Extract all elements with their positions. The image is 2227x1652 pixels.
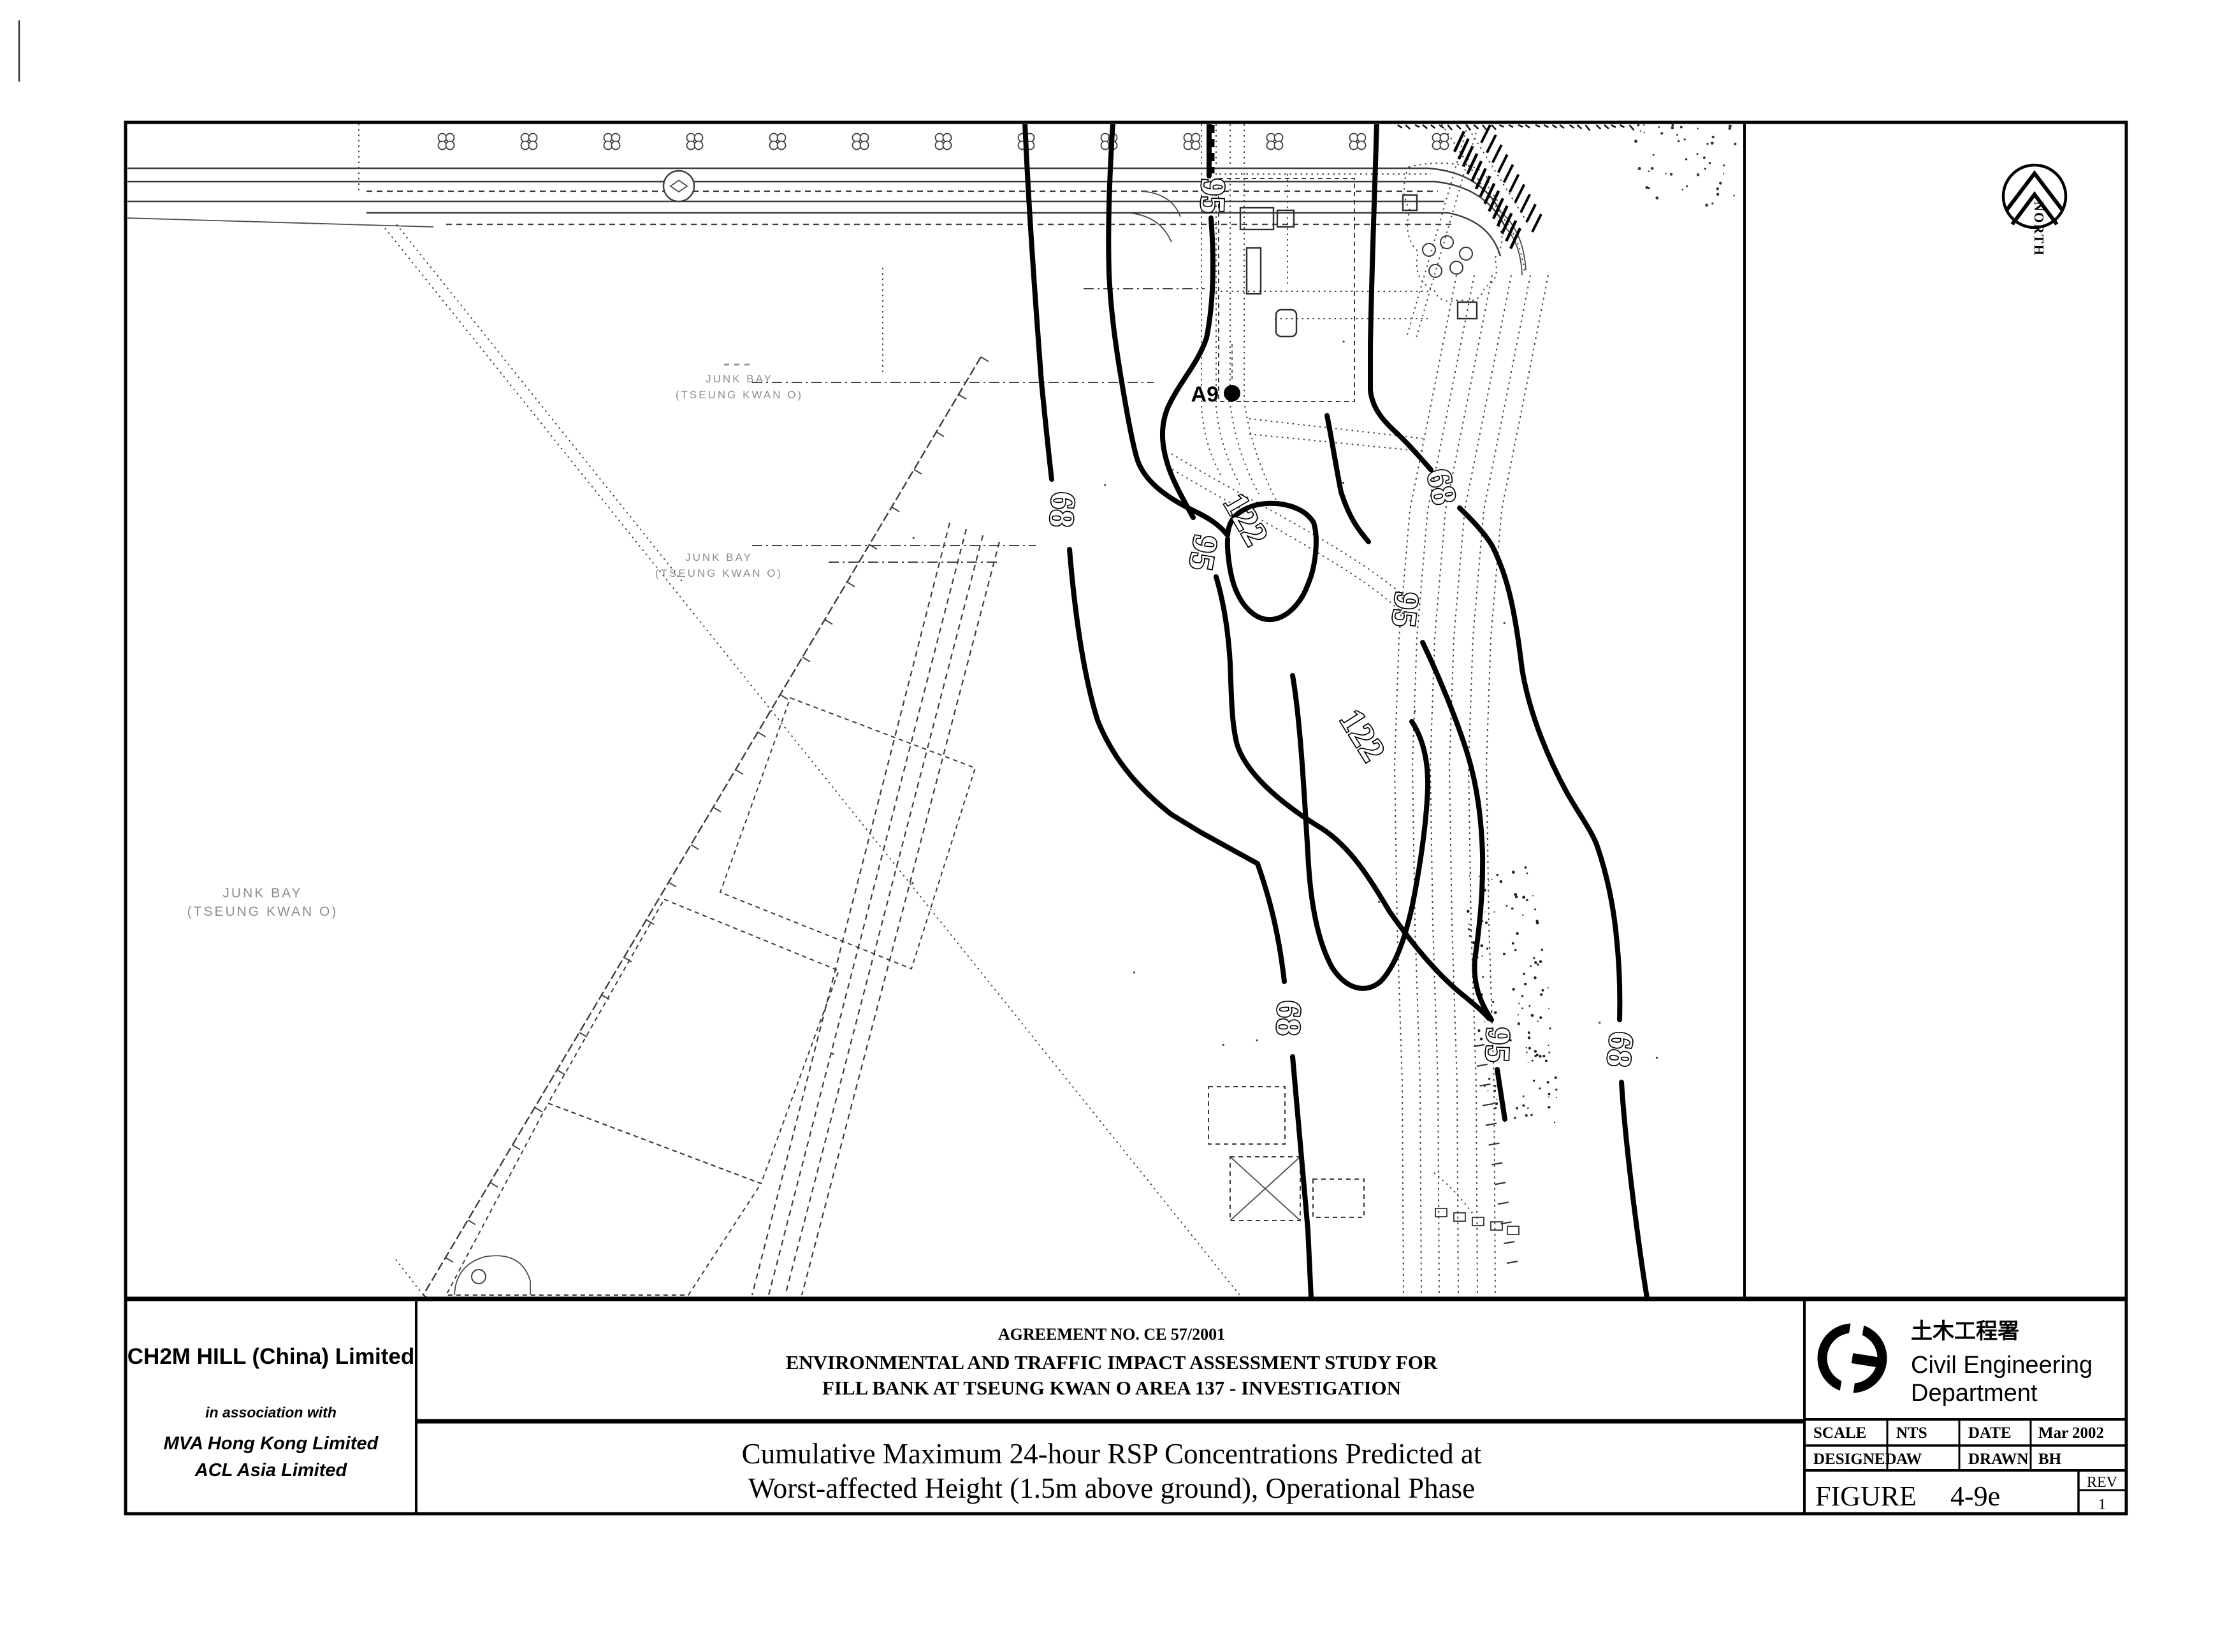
stipple-dot: [1537, 1020, 1539, 1022]
edge-texture: [1525, 125, 1530, 128]
survey-fleck: [1414, 710, 1416, 712]
survey-fleck: [911, 882, 913, 884]
stipple-dot: [1549, 1027, 1551, 1029]
edge-texture: [1596, 125, 1600, 129]
vegetation-dot: [1676, 134, 1678, 136]
stipple-dot: [1554, 1122, 1556, 1124]
edge-texture: [1466, 125, 1470, 130]
contour-68-west: [1025, 122, 1311, 1298]
consultant-partner-2: ACL Asia Limited: [194, 1460, 348, 1481]
stipple-dot: [1548, 987, 1549, 989]
stipple-dot: [1528, 1047, 1531, 1050]
stipple-dot: [1528, 1036, 1530, 1039]
sheet-frame: [126, 122, 2126, 1514]
survey-fleck: [1599, 1022, 1600, 1024]
tree-icon: [439, 134, 454, 150]
stipple-dot: [1556, 1097, 1557, 1098]
stipple-dot: [1541, 948, 1543, 950]
stipple-dot: [1534, 961, 1537, 964]
vegetation-dot: [1644, 132, 1645, 133]
edge-texture: [1474, 125, 1478, 129]
stipple-dot: [1470, 929, 1471, 931]
stipple-dot: [1512, 871, 1515, 874]
stipple-dot: [1534, 908, 1536, 910]
survey-fleck: [1342, 340, 1344, 342]
stipple-dot: [1525, 866, 1527, 869]
department-cell: 土木工程署 Civil Engineering Department: [1822, 1316, 2093, 1407]
stipple-dot: [1488, 880, 1490, 881]
edge-texture: [1544, 125, 1548, 127]
vegetation-dot: [1734, 143, 1736, 145]
slope-hatch: [1532, 214, 1541, 232]
contour-label-95: 95: [1193, 178, 1233, 215]
vegetation-dot: [1696, 153, 1698, 155]
stipple-dot: [1540, 993, 1542, 996]
seawall-tick: [713, 808, 721, 812]
date-label: DATE: [1968, 1424, 2012, 1442]
seawall-tick: [847, 582, 855, 586]
vegetation-dot: [1733, 195, 1735, 197]
water-label-name-0: JUNK BAY: [706, 373, 773, 385]
vegetation-dot: [1685, 158, 1687, 160]
stipple-dot: [1479, 876, 1480, 877]
stipple-dot: [1526, 899, 1528, 901]
stipple-dot: [1526, 1047, 1527, 1048]
vegetation-dot: [1681, 189, 1683, 191]
water-label-alt-0: (TSEUNG KWAN O): [676, 389, 803, 401]
stipple-dot: [1512, 942, 1514, 945]
stipple-dot: [1518, 1014, 1519, 1015]
vegetation-dot: [1648, 187, 1650, 189]
road-bundle-line: [1449, 275, 1511, 1297]
survey-fleck: [1256, 1040, 1258, 1041]
road-bundle-line: [1412, 275, 1474, 1297]
stipple-dot: [1525, 1114, 1528, 1117]
survey-fleck: [1104, 484, 1106, 486]
vegetation-dot: [1660, 132, 1663, 134]
consultant-association: in association with: [205, 1404, 337, 1421]
stipple-dot: [1494, 1085, 1496, 1087]
stipple-dot: [1482, 976, 1484, 978]
edge-texture: [1518, 125, 1523, 127]
title-block: CH2M HILL (China) Limited in association…: [127, 1299, 2126, 1514]
slope-hatch: [1515, 184, 1524, 202]
drawn-value: BH: [2038, 1451, 2062, 1468]
edge-texture: [1553, 125, 1557, 128]
survey-fleck: [1378, 901, 1380, 903]
stipple-dot: [1542, 1055, 1545, 1057]
stipple-dot: [1484, 911, 1486, 913]
bench-tick: [1477, 1064, 1488, 1066]
stipple-dot: [1491, 879, 1493, 880]
stipple-dot: [1494, 1011, 1497, 1014]
stipple-dot: [1527, 1107, 1529, 1109]
stipple-dot: [1518, 1022, 1520, 1025]
stipple-dot: [1516, 1107, 1518, 1110]
north-arrow-icon: NORTH: [2003, 165, 2066, 256]
survey-fleck: [1222, 1044, 1224, 1046]
stipple-dot: [1503, 953, 1505, 955]
stipple-dot: [1527, 873, 1528, 874]
vegetation-dot: [1711, 141, 1714, 145]
vegetation-dot: [1665, 173, 1667, 175]
water-label-alt-1: (TSEUNG KWAN O): [655, 567, 783, 579]
vegetation-dot: [1706, 143, 1708, 145]
department-name-zh: 土木工程署: [1911, 1319, 2019, 1344]
stipple-dot: [1469, 924, 1470, 925]
figure-title-line-1: Cumulative Maximum 24-hour RSP Concentra…: [742, 1438, 1482, 1470]
seawall-line: [423, 357, 981, 1295]
stipple-dot: [1516, 932, 1519, 935]
edge-texture: [1560, 125, 1564, 128]
contour-label-122: 122: [1332, 702, 1393, 768]
jetty-structure: [1454, 1213, 1465, 1221]
stipple-dot: [1522, 895, 1525, 899]
vegetation-dot: [1716, 193, 1720, 196]
rev-label: REV: [2087, 1474, 2118, 1491]
tree-icon: [1184, 134, 1200, 150]
jetty-structure: [1491, 1222, 1502, 1230]
edge-texture: [1423, 125, 1427, 129]
vegetation-dot: [1671, 126, 1674, 129]
vegetation-dot: [1655, 196, 1658, 199]
stipple-dot: [1486, 948, 1488, 950]
edge-texture: [1456, 125, 1461, 129]
survey-fleck: [913, 537, 915, 539]
date-value: Mar 2002: [2038, 1424, 2104, 1442]
stipple-dot: [1496, 1099, 1497, 1100]
consultant-lead: CH2M HILL (China) Limited: [127, 1344, 414, 1369]
ced-logo-icon: [1822, 1316, 1882, 1400]
vegetation-dot: [1638, 167, 1641, 170]
stipple-dot: [1548, 1106, 1550, 1108]
designed-label: DESIGNED: [1813, 1451, 1897, 1468]
edge-texture: [1611, 125, 1616, 127]
a9-marker-dot: [1224, 385, 1240, 402]
road-bundle-line: [1430, 275, 1492, 1297]
vegetation-dot: [1697, 173, 1699, 176]
vegetation-dot: [1684, 138, 1686, 140]
edge-texture: [1415, 125, 1419, 127]
edge-texture: [1604, 125, 1609, 129]
contours: [1025, 122, 1647, 1298]
stipple-dot: [1526, 1052, 1527, 1053]
scale-value: NTS: [1896, 1424, 1927, 1442]
stipple-dot: [1545, 1060, 1548, 1062]
stipple-dot: [1514, 1119, 1515, 1120]
vegetation-dot: [1648, 170, 1650, 172]
seawall-tick: [557, 1070, 565, 1075]
vegetation-dot: [1658, 126, 1660, 128]
stipple-dot: [1539, 1087, 1541, 1089]
stipple-dot: [1534, 976, 1536, 979]
seawall-tick: [780, 695, 788, 699]
terrain-decoration: [423, 124, 1736, 1300]
contour-label-95: 95: [1478, 1027, 1518, 1064]
survey-fleck: [1133, 971, 1135, 973]
map-area: 6895951229568122956868 JUNK BAY(TSEUNG K…: [126, 122, 1736, 1300]
study-line-2: FILL BANK AT TSEUNG KWAN O AREA 137 - IN…: [822, 1377, 1401, 1399]
consultant-partner-1: MVA Hong Kong Limited: [164, 1433, 379, 1454]
seawall-tick: [892, 507, 899, 512]
bench-tick: [1498, 1202, 1509, 1204]
stipple-dot: [1481, 955, 1483, 957]
seawall-tick: [736, 770, 743, 774]
water-labels: JUNK BAY(TSEUNG KWAN O)JUNK BAY(TSEUNG K…: [187, 365, 803, 919]
stipple-dot: [1532, 895, 1534, 896]
stipple-dot: [1481, 945, 1484, 948]
stipple-dot: [1512, 988, 1514, 990]
edge-texture: [1509, 125, 1513, 127]
department-name-en-1: Civil Engineering: [1911, 1352, 2093, 1379]
bench-tick: [1489, 1143, 1500, 1145]
tree-icon: [853, 134, 869, 150]
vegetation-dot: [1712, 136, 1715, 138]
roundabout: [664, 171, 694, 201]
vegetation-dot: [1640, 130, 1641, 131]
jetty-structure: [1435, 1208, 1447, 1217]
stipple-dot: [1522, 1105, 1525, 1107]
edge-texture: [1630, 125, 1634, 130]
contour-68-east: [1370, 122, 1647, 1298]
seawall-tick: [981, 357, 989, 361]
stipple-dot: [1493, 911, 1495, 913]
vegetation-dot: [1711, 203, 1713, 205]
vegetation-dot: [1680, 126, 1683, 129]
jetty-structure: [1507, 1226, 1519, 1235]
seawall-tick: [691, 844, 699, 849]
seawall-tick: [758, 732, 765, 737]
tree-icon: [604, 134, 620, 150]
vegetation-dot: [1703, 156, 1706, 159]
contour-label-68: 68: [1042, 491, 1083, 529]
seawall-tick: [512, 1145, 520, 1149]
edge-texture: [1570, 125, 1574, 128]
stipple-dot: [1548, 1096, 1549, 1098]
contour-95-east: [1327, 416, 1505, 1119]
stipple-dot: [1528, 1062, 1529, 1063]
seawall-tick: [802, 657, 810, 662]
seawall-tick: [825, 619, 832, 624]
stipple-dot: [1506, 905, 1508, 907]
vegetation-dot: [1634, 140, 1637, 143]
north-label: NORTH: [2031, 201, 2047, 256]
seawall-tick: [535, 1108, 542, 1112]
stipple-dot: [1530, 1114, 1533, 1117]
bench-tick: [1495, 1182, 1505, 1184]
drawn-label: DRAWN: [1968, 1451, 2028, 1468]
survey-fleck: [1342, 482, 1344, 484]
stipple-dot: [1521, 995, 1523, 997]
edge-texture: [1447, 125, 1452, 130]
stipple-dot: [1495, 1102, 1498, 1105]
tree-icon: [687, 134, 703, 150]
stipple-dot: [1500, 880, 1503, 883]
slope-hatch: [1498, 155, 1507, 173]
seawall-tick: [624, 957, 632, 962]
stipple-dot: [1555, 1076, 1557, 1079]
stipple-dot: [1518, 1003, 1520, 1004]
stipple-dot: [1537, 963, 1539, 966]
vegetation-dot: [1643, 124, 1644, 126]
slope-hatch: [1521, 194, 1530, 212]
stipple-dot: [1531, 1014, 1534, 1017]
stipple-dot: [1488, 1090, 1489, 1092]
vegetation-dot: [1709, 162, 1711, 164]
stipple-dot: [1469, 935, 1471, 937]
seawall-tick: [490, 1182, 498, 1187]
survey-fleck: [1656, 1057, 1658, 1059]
contour-label-68: 68: [1269, 1000, 1309, 1037]
stipple-dot: [1491, 1011, 1492, 1013]
slope-hatch: [1527, 204, 1535, 222]
stipple-dot: [1528, 1005, 1530, 1007]
seawall-tick: [959, 395, 966, 399]
vegetation-dot: [1723, 173, 1724, 174]
vegetation-dot: [1723, 164, 1725, 166]
vegetation-dot: [1719, 182, 1722, 185]
stipple-dot: [1548, 1093, 1551, 1096]
stipple-dot: [1511, 908, 1514, 910]
stipple-dot: [1522, 915, 1523, 916]
stipple-dot: [1514, 949, 1516, 951]
stipple-dot: [1534, 1050, 1537, 1052]
stipple-dot: [1470, 871, 1471, 873]
stipple-dot: [1548, 1008, 1549, 1010]
edge-texture: [1620, 125, 1624, 127]
tree-icon: [770, 134, 786, 150]
stipple-dot: [1533, 1080, 1535, 1082]
stipple-dot: [1523, 1096, 1525, 1098]
info-table: SCALE NTS DATE Mar 2002 DESIGNED AW DRAW…: [1813, 1424, 2118, 1513]
road-network: [126, 124, 1528, 1295]
vegetation-dot: [1678, 140, 1679, 142]
stipple-dot: [1555, 1089, 1557, 1090]
edge-texture: [1398, 125, 1402, 128]
figure-label: FIGURE: [1815, 1481, 1917, 1512]
vegetation-dot: [1705, 204, 1708, 207]
stipple-dot: [1521, 1008, 1523, 1010]
tree-icon: [1267, 134, 1283, 150]
bench-tick: [1504, 1242, 1514, 1243]
slope-hatch: [1504, 164, 1513, 182]
water-label-name-2: JUNK BAY: [222, 886, 302, 901]
edge-texture: [1491, 125, 1496, 129]
drawing-sheet: 6895951229568122956868 JUNK BAY(TSEUNG K…: [0, 0, 2227, 1652]
seawall-tick: [579, 1032, 587, 1037]
edge-texture: [1405, 125, 1410, 129]
tree-icon: [521, 134, 537, 150]
edge-texture: [1535, 125, 1540, 127]
vegetation-dot: [1729, 127, 1732, 130]
rev-value: 1: [2098, 1496, 2106, 1513]
consultants-cell: CH2M HILL (China) Limited in association…: [127, 1344, 414, 1481]
stipple-dot: [1468, 928, 1470, 930]
edge-texture: [1431, 125, 1435, 128]
figure-title-line-2: Worst-affected Height (1.5m above ground…: [748, 1472, 1475, 1504]
water-label-alt-2: (TSEUNG KWAN O): [187, 904, 338, 919]
stipple-dot: [1547, 1081, 1549, 1083]
vegetation-dot: [1637, 124, 1639, 126]
vegetation-dot: [1686, 185, 1688, 187]
edge-texture: [1585, 125, 1590, 131]
edge-texture: [1483, 125, 1487, 130]
stipple-dot: [1495, 1107, 1497, 1109]
stipple-dot: [1488, 1078, 1490, 1080]
stipple-dot: [1524, 983, 1527, 985]
stipple-dot: [1494, 1090, 1496, 1092]
slope-hatch: [1481, 125, 1490, 143]
stipple-dot: [1533, 957, 1535, 959]
edge-texture: [1439, 125, 1444, 128]
tree-icon: [1350, 134, 1366, 150]
department-name-en-2: Department: [1911, 1380, 2038, 1407]
stipple-dot: [1536, 1054, 1539, 1056]
stipple-dot: [1528, 1031, 1530, 1034]
contour-label-95: 95: [1182, 532, 1226, 574]
bench-tick: [1479, 1084, 1490, 1086]
survey-fleck: [1504, 622, 1505, 624]
agreement-number: AGREEMENT NO. CE 57/2001: [998, 1325, 1225, 1344]
stipple-dot: [1484, 1021, 1485, 1022]
vegetation-dot: [1653, 154, 1655, 156]
stipple-dot: [1523, 973, 1525, 975]
stipple-dot: [1515, 895, 1518, 898]
vegetation-dot: [1651, 167, 1654, 170]
edge-texture: [1499, 125, 1504, 127]
contour-label-68: 68: [1419, 465, 1464, 508]
stipple-dot: [1539, 1017, 1542, 1019]
survey-fleck: [832, 1053, 834, 1055]
vegetation-dot: [1670, 173, 1672, 175]
stipple-dot: [1542, 989, 1544, 992]
slope-hatch: [1509, 175, 1518, 192]
stipple-dot: [1539, 1055, 1542, 1058]
project-cell: AGREEMENT NO. CE 57/2001 ENVIRONMENTAL A…: [742, 1325, 1482, 1504]
seawall-tick: [669, 882, 676, 887]
bench-tick: [1483, 1104, 1493, 1106]
water-label-name-1: JUNK BAY: [685, 551, 753, 563]
slope-hatch: [1487, 135, 1496, 153]
vegetation-dot: [1697, 128, 1699, 129]
bench-tick: [1507, 1261, 1518, 1263]
a9-label: A9: [1191, 382, 1219, 407]
study-line-1: ENVIRONMENTAL AND TRAFFIC IMPACT ASSESSM…: [786, 1351, 1438, 1373]
seawall-tick: [936, 432, 944, 437]
contour-label-68: 68: [1599, 1030, 1641, 1069]
figure-number: 4-9e: [1950, 1481, 2000, 1512]
seawall-tick: [468, 1220, 475, 1224]
slope-hatch: [1493, 145, 1502, 163]
stipple-dot: [1469, 875, 1470, 876]
stipple-dot: [1535, 920, 1538, 922]
stipple-dot: [1539, 960, 1542, 963]
designed-value: AW: [1896, 1451, 1922, 1468]
tree-icon: [936, 134, 952, 150]
stipple-dot: [1548, 1045, 1549, 1046]
seawall-tick: [446, 1257, 453, 1262]
contour-labels: 6895951229568122956868: [1042, 178, 1641, 1069]
tree-icon: [1433, 134, 1449, 150]
edge-texture: [1577, 125, 1581, 129]
stipple-dot: [1485, 922, 1488, 924]
stipple-dot: [1532, 1060, 1534, 1062]
vegetation-dot: [1704, 168, 1706, 170]
seawall-tick: [914, 470, 922, 474]
vegetation-dot: [1716, 187, 1719, 191]
vegetation-dot: [1671, 124, 1674, 127]
stipple-dot: [1467, 910, 1470, 913]
